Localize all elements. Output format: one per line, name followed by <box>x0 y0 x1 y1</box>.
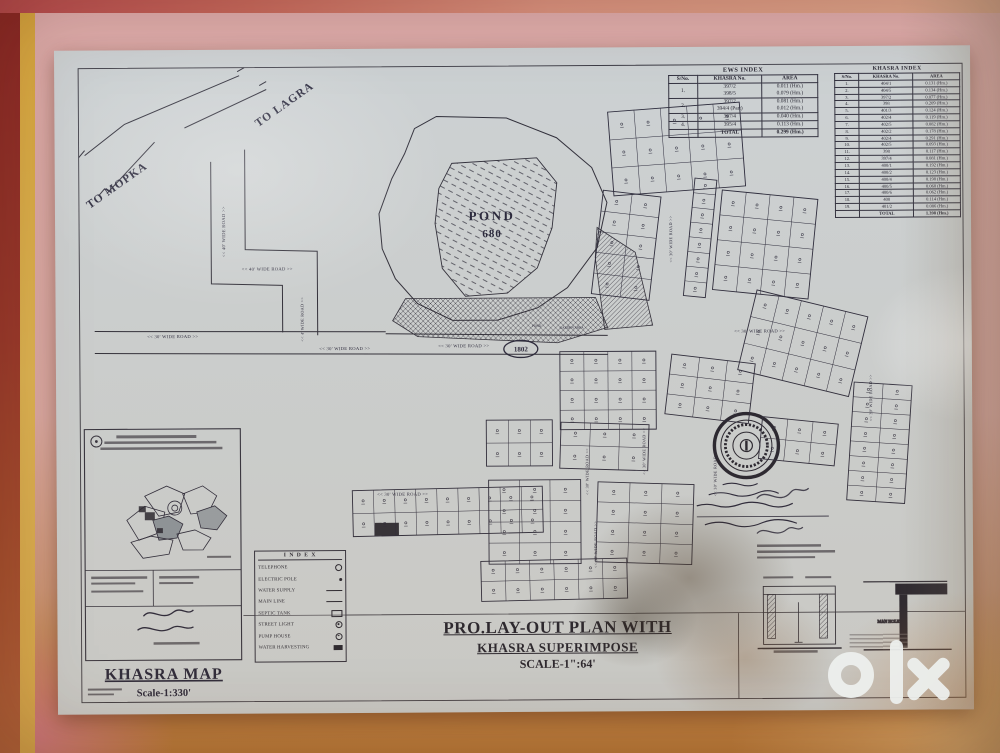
plot-number-mark <box>613 221 615 223</box>
garden-small-label: GARDEN AREA <box>560 326 585 330</box>
garden-crosshatch-strip <box>393 297 608 343</box>
legend-item: ELECTRIC POLE <box>258 573 342 585</box>
area-cell: 0.081 (Hm.) 0.012 (Hm.) <box>762 98 818 113</box>
plot-divider <box>720 361 727 421</box>
plot-number-mark <box>604 433 606 435</box>
legend-item-label: SEPTIC TANK <box>258 611 290 616</box>
plot-number-mark <box>564 488 566 490</box>
plot-number-mark <box>675 532 677 534</box>
road-label: << 30' WIDE ROAD >> <box>641 427 646 474</box>
plot-divider <box>782 301 801 381</box>
legend-box: I N D E X TELEPHONEELECTRIC POLEWATER SU… <box>254 550 347 663</box>
plot-divider <box>560 371 656 372</box>
table-header-row: S/No.KHASRA No.AREA <box>669 75 818 84</box>
plot-number-mark <box>891 464 893 466</box>
plot-block <box>712 190 817 299</box>
plot-number-mark <box>681 383 683 385</box>
plot-divider <box>560 410 656 411</box>
to-lagra-label: TO LAGRA <box>253 80 316 130</box>
plot-number-mark <box>531 496 533 498</box>
plot-number-mark <box>677 175 679 177</box>
sno-cell: 2. <box>669 98 698 113</box>
legend-item-label: STREET LIGHT <box>258 622 294 627</box>
plot-number-mark <box>643 398 645 400</box>
legend-items: TELEPHONEELECTRIC POLEWATER SUPPLYMAIN L… <box>258 562 343 654</box>
plot-number-mark <box>503 530 505 532</box>
ews-index-rows: S/No.KHASRA No.AREA1.397/2 398/50.011 (H… <box>669 75 818 138</box>
plot-number-mark <box>647 121 649 123</box>
plot-number-mark <box>679 403 681 405</box>
plot-number-mark <box>589 567 591 569</box>
plot-number-mark <box>564 509 566 511</box>
plot-number-mark <box>611 550 613 552</box>
plot-number-mark <box>363 523 365 525</box>
plot-number-mark <box>739 370 741 372</box>
plot-number-mark <box>651 177 653 179</box>
plot-number-mark <box>756 204 758 206</box>
plot-number-mark <box>492 569 494 571</box>
plot-number-mark <box>683 363 685 365</box>
plot-number-mark <box>405 522 407 524</box>
plot-number-mark <box>541 568 543 570</box>
plot-number-mark <box>795 367 798 370</box>
plot-divider <box>804 306 823 386</box>
plot-number-mark <box>565 567 567 569</box>
dot-symbol-icon <box>339 578 342 581</box>
plot-number-mark <box>574 432 576 434</box>
plot-number-mark <box>756 334 759 335</box>
plot-number-mark <box>362 500 364 502</box>
sno-cell: 4. <box>669 121 698 129</box>
plot-number-mark <box>510 519 512 521</box>
line-symbol-icon <box>326 601 342 602</box>
plot-number-mark <box>697 258 699 260</box>
title-block: PRO.LAY-OUT PLAN WITH KHASRA SUPERIMPOSE… <box>357 617 757 673</box>
boxfill-symbol-icon <box>334 645 343 650</box>
plot-number-mark <box>896 390 898 392</box>
plot-number-mark <box>785 313 788 314</box>
plot-number-mark <box>700 228 702 230</box>
plot-number-mark <box>798 429 800 431</box>
plot-number-mark <box>510 496 512 498</box>
plot-divider <box>353 509 543 513</box>
khasra-cell: 397/2 398/5 <box>697 83 762 98</box>
plot-number-mark <box>796 283 798 285</box>
plot-divider <box>744 343 855 370</box>
plot-block <box>738 290 868 397</box>
plot-number-mark <box>676 512 678 514</box>
plot-number-mark <box>830 320 833 323</box>
plot-number-mark <box>780 206 782 208</box>
sno-cell: 1. <box>669 83 698 98</box>
plot-number-mark <box>863 447 865 449</box>
plot-number-mark <box>824 431 826 433</box>
legend-item-label: PUMP HOUSE <box>259 634 291 639</box>
circdot-symbol-icon <box>336 633 343 640</box>
plot-number-mark <box>625 179 627 181</box>
plot-number-mark <box>816 377 819 378</box>
plot-number-mark <box>612 530 614 532</box>
sno-cell <box>669 129 698 137</box>
plot-block <box>596 482 694 565</box>
plot-number-mark <box>780 336 783 339</box>
plot-divider <box>597 522 693 525</box>
circdot-symbol-icon <box>335 621 342 628</box>
sno-cell: 3. <box>669 113 698 121</box>
plot-number-mark <box>612 510 614 512</box>
plot-number-mark <box>703 199 705 201</box>
plan-sheet: POND 680 POND GARDEN AREA TO LAGRA TO MO… <box>54 45 974 715</box>
khasra-index-rows: S/No.KHASRA No.AREA1.404/10.131 (Hm.)2.4… <box>835 73 961 217</box>
plot-divider <box>601 211 659 218</box>
sno-cell <box>835 210 859 217</box>
total-label-cell: TOTAL <box>860 210 914 217</box>
inset-parcel-cluster <box>127 486 227 559</box>
background-left-yellow-strip <box>20 0 35 753</box>
plot-divider <box>692 207 714 209</box>
plot-number-mark <box>571 379 573 381</box>
plot-number-mark <box>732 201 734 203</box>
plot-number-mark <box>644 511 646 513</box>
to-mopka-label: TO MOPKA <box>85 160 150 211</box>
plot-number-mark <box>603 456 605 458</box>
plot-number-mark <box>764 304 767 307</box>
plot-number-mark <box>531 519 533 521</box>
plot-number-mark <box>865 418 867 420</box>
plot-number-mark <box>772 281 774 283</box>
road-label: << 30' WIDE ROAD >> <box>147 334 198 339</box>
legend-item-label: TELEPHONE <box>258 566 288 571</box>
plot-number-mark <box>725 276 727 278</box>
plot-number-mark <box>727 251 729 253</box>
plan-title-line2: KHASRA SUPERIMPOSE <box>358 639 758 657</box>
pond-number-label: 680 <box>482 228 502 240</box>
plot-number-mark <box>763 308 766 309</box>
plot-number-mark <box>639 245 641 247</box>
plot-block <box>847 382 912 503</box>
plot-number-mark <box>861 491 863 493</box>
column-header: S/No. <box>669 75 698 83</box>
plot-divider <box>560 445 648 448</box>
plot-number-mark <box>829 324 832 325</box>
plot-number-mark <box>675 147 677 149</box>
plot-divider <box>612 158 744 168</box>
plan-title-line1: PRO.LAY-OUT PLAN WITH <box>357 617 757 639</box>
plot-number-mark <box>890 478 892 480</box>
plot-number-mark <box>728 143 730 145</box>
plot-block <box>489 480 582 565</box>
plot-block <box>481 558 628 601</box>
plot-number-mark <box>489 520 491 522</box>
plot-number-mark <box>892 449 894 451</box>
plot-number-mark <box>729 226 731 228</box>
plot-number-mark <box>425 498 427 500</box>
plot-number-mark <box>426 521 428 523</box>
plot-number-mark <box>786 309 789 312</box>
plot-divider <box>717 240 813 249</box>
plot-number-mark <box>564 530 566 532</box>
road-label: << 40' WIDE ROAD >> <box>242 266 293 271</box>
plot-number-mark <box>534 551 536 553</box>
plot-divider <box>669 374 752 384</box>
olx-o <box>828 652 874 698</box>
plot-number-mark <box>794 372 797 373</box>
plot-number-mark <box>595 379 597 381</box>
area-cell: 0.011 (Hm.) 0.079 (Hm.) <box>762 83 818 98</box>
inset-signatures <box>137 610 193 631</box>
pond-small-label: POND <box>532 324 542 328</box>
plot-number-mark <box>574 455 576 457</box>
plot-divider <box>691 222 713 224</box>
plot-number-mark <box>677 492 679 494</box>
plot-number-mark <box>503 509 505 511</box>
plot-number-mark <box>694 287 696 289</box>
plot-number-mark <box>645 491 647 493</box>
plot-divider <box>689 237 711 239</box>
plot-divider <box>760 295 779 375</box>
khasra-map-inset: KHASRA MAP Scale-1:330' <box>84 429 242 700</box>
plot-number-mark <box>496 429 498 431</box>
plot-number-mark <box>517 588 519 590</box>
legend-title: I N D E X <box>258 552 342 561</box>
plot-number-mark <box>701 214 703 216</box>
plot-number-mark <box>846 352 849 355</box>
plot-number-mark <box>632 457 634 459</box>
plot-number-mark <box>821 452 823 454</box>
plot-number-mark <box>702 145 704 147</box>
legend-item: WATER HARVESTING <box>259 642 343 654</box>
plot-divider <box>715 265 811 274</box>
plot-divider <box>826 311 845 391</box>
khasra-index-title: KHASRA INDEX <box>834 65 960 72</box>
legend-item-label: WATER HARVESTING <box>259 645 310 650</box>
box-symbol-icon <box>331 610 342 617</box>
plot-number-mark <box>503 551 505 553</box>
legend-item: MAIN LINE <box>258 596 342 608</box>
plot-number-mark <box>734 410 736 412</box>
plot-number-mark <box>861 476 863 478</box>
plot-number-mark <box>796 450 798 452</box>
plot-divider <box>597 502 693 505</box>
ews-index-table: EWS INDEX S/No.KHASRA No.AREA1.397/2 398… <box>668 66 818 138</box>
road-label: << 30' WIDE ROAD >> <box>668 215 673 262</box>
plot-number-mark <box>565 587 567 589</box>
plot-number-mark <box>750 361 753 362</box>
plot-divider <box>660 108 666 192</box>
plot-number-mark <box>614 566 616 568</box>
plot-divider <box>688 251 710 253</box>
plot-number-mark <box>778 340 781 341</box>
circle-symbol-icon <box>335 564 342 571</box>
olx-watermark-logo <box>826 622 996 727</box>
plot-number-mark <box>643 417 645 419</box>
plot-number-mark <box>613 490 615 492</box>
table-total-row: TOTAL0.299 (Hm.) <box>669 129 818 138</box>
plot-number-mark <box>518 429 520 431</box>
plot-number-mark <box>595 398 597 400</box>
plot-divider <box>596 542 692 545</box>
table-row: 1.397/2 398/50.011 (Hm.) 0.079 (Hm.) <box>669 83 818 99</box>
road-label: << 4' WIDE ROAD >> <box>299 297 304 342</box>
plot-number-mark <box>644 203 646 205</box>
total-value-cell: 1.398 (Hm.) <box>914 210 961 217</box>
plot-number-mark <box>642 224 644 226</box>
pond-hatched-area <box>435 158 558 297</box>
road-label: << 40' WIDE ROAD >> <box>221 206 226 257</box>
plot-number-mark <box>468 520 470 522</box>
khasra-map-scale: Scale-1:330' <box>137 688 191 699</box>
plot-number-mark <box>571 418 573 420</box>
plot-number-mark <box>503 488 505 490</box>
plot-number-mark <box>838 382 841 383</box>
plot-number-mark <box>590 587 592 589</box>
plot-number-mark <box>633 434 635 436</box>
plot-number-mark <box>751 254 753 256</box>
road-label: << 30' WIDE ROAD >> <box>377 492 428 497</box>
plot-divider <box>634 110 640 194</box>
plot-divider <box>489 501 581 502</box>
plot-number-mark <box>777 231 779 233</box>
plot-number-mark <box>695 272 697 274</box>
plot-number-mark <box>541 588 543 590</box>
plot-number-mark <box>643 359 645 361</box>
plot-number-mark <box>518 452 520 454</box>
plot-number-mark <box>619 417 621 419</box>
plot-number-mark <box>643 531 645 533</box>
plot-number-mark <box>571 398 573 400</box>
plot-number-mark <box>737 390 739 392</box>
plot-number-mark <box>802 341 805 344</box>
plot-divider <box>560 390 656 391</box>
plot-number-mark <box>889 493 891 495</box>
plot-number-mark <box>619 378 621 380</box>
plot-number-mark <box>704 184 706 186</box>
legend-item-label: ELECTRIC POLE <box>258 577 297 582</box>
plot-number-mark <box>615 200 617 202</box>
legend-item-label: MAIN LINE <box>258 600 285 605</box>
plot-number-mark <box>467 497 469 499</box>
plot-divider <box>489 543 581 544</box>
plot-block <box>560 351 656 430</box>
plot-number-mark <box>799 258 801 260</box>
line-symbol-icon <box>326 590 342 591</box>
plot-divider <box>720 215 816 224</box>
olx-bar <box>890 640 903 704</box>
plot-number-mark <box>808 314 811 317</box>
plot-number-mark <box>772 366 775 367</box>
hatched-wedge <box>595 227 653 329</box>
plot-number-mark <box>404 499 406 501</box>
plot-number-mark <box>707 406 709 408</box>
plot-number-mark <box>595 359 597 361</box>
plot-number-mark <box>709 387 711 389</box>
plot-number-mark <box>619 398 621 400</box>
plot-divider <box>667 394 750 404</box>
plot-block <box>683 178 717 298</box>
total-label-cell: TOTAL <box>698 129 763 137</box>
legend-item: PUMP HOUSE <box>259 630 343 642</box>
plot-number-mark <box>614 586 616 588</box>
ews-index-title: EWS INDEX <box>668 66 818 74</box>
plot-number-mark <box>773 362 776 365</box>
plot-number-mark <box>895 405 897 407</box>
plan-title-line3: SCALE-1":64' <box>358 656 758 673</box>
plot-number-mark <box>619 359 621 361</box>
plot-number-mark <box>447 521 449 523</box>
plot-number-mark <box>864 432 866 434</box>
road-label: << 30' WIDE ROAD >> <box>712 449 717 496</box>
plot-divider <box>685 281 707 283</box>
plot-number-mark <box>675 552 677 554</box>
plot-number-mark <box>824 346 827 349</box>
plot-number-mark <box>840 378 843 381</box>
plot-number-mark <box>894 419 896 421</box>
plot-number-mark <box>496 452 498 454</box>
plot-number-mark <box>565 551 567 553</box>
plot-number-mark <box>852 325 855 328</box>
plot-number-mark <box>801 345 804 346</box>
plot-number-mark <box>623 151 625 153</box>
plot-number-mark <box>823 350 826 351</box>
legend-item-label: WATER SUPPLY <box>258 588 295 593</box>
plot-number-mark <box>751 357 754 360</box>
road-label: << 30' WIDE ROAD >> <box>584 448 589 495</box>
plot-number-mark <box>801 233 803 235</box>
table-total-row: TOTAL1.398 (Hm.) <box>835 210 960 218</box>
photo-of-layout-plan: POND 680 POND GARDEN AREA TO LAGRA TO MO… <box>0 0 1000 753</box>
legend-item: STREET LIGHT <box>258 619 342 631</box>
background-top-strip <box>0 0 1000 13</box>
legend-item: WATER SUPPLY <box>258 585 342 597</box>
plot-number-mark <box>516 568 518 570</box>
plot-number-mark <box>649 149 651 151</box>
plot-number-mark <box>571 359 573 361</box>
legend-item: TELEPHONE <box>258 562 342 574</box>
khasra-map-title: KHASRA MAP <box>105 666 223 684</box>
plot-number-mark <box>643 378 645 380</box>
plot-number-mark <box>775 256 777 258</box>
plot-number-mark <box>621 123 623 125</box>
legend-item: SEPTIC TANK <box>258 608 342 620</box>
plot-divider <box>693 357 700 417</box>
plot-number-mark <box>730 171 732 173</box>
road-label: << 30' WIDE ROAD >> <box>438 343 489 348</box>
plot-number-mark <box>698 243 700 245</box>
plot-number-mark <box>595 418 597 420</box>
plot-number-mark <box>845 356 848 357</box>
plot-number-mark <box>748 278 750 280</box>
oval-stamp-number: 1802 <box>514 345 529 353</box>
plot-number-mark <box>804 208 806 210</box>
plot-number-mark <box>851 329 854 330</box>
plot-number-mark <box>807 318 810 319</box>
plot-number-mark <box>893 434 895 436</box>
plot-number-mark <box>704 173 706 175</box>
khasra-cell: 397/2 394/4 (Part) <box>697 98 762 113</box>
plot-divider <box>694 193 716 195</box>
plot-number-mark <box>383 499 385 501</box>
plot-number-mark <box>492 589 494 591</box>
plot-number-mark <box>711 367 713 369</box>
plot-number-mark <box>753 229 755 231</box>
khasra-index-table: KHASRA INDEX S/No.KHASRA No.AREA1.404/10… <box>834 65 961 217</box>
plot-number-mark <box>862 462 864 464</box>
total-value-cell: 0.299 (Hm.) <box>762 129 818 137</box>
plot-divider <box>489 522 581 523</box>
plot-number-mark <box>540 452 542 454</box>
background-left-red-strip <box>0 0 20 753</box>
plot-number-mark <box>446 498 448 500</box>
